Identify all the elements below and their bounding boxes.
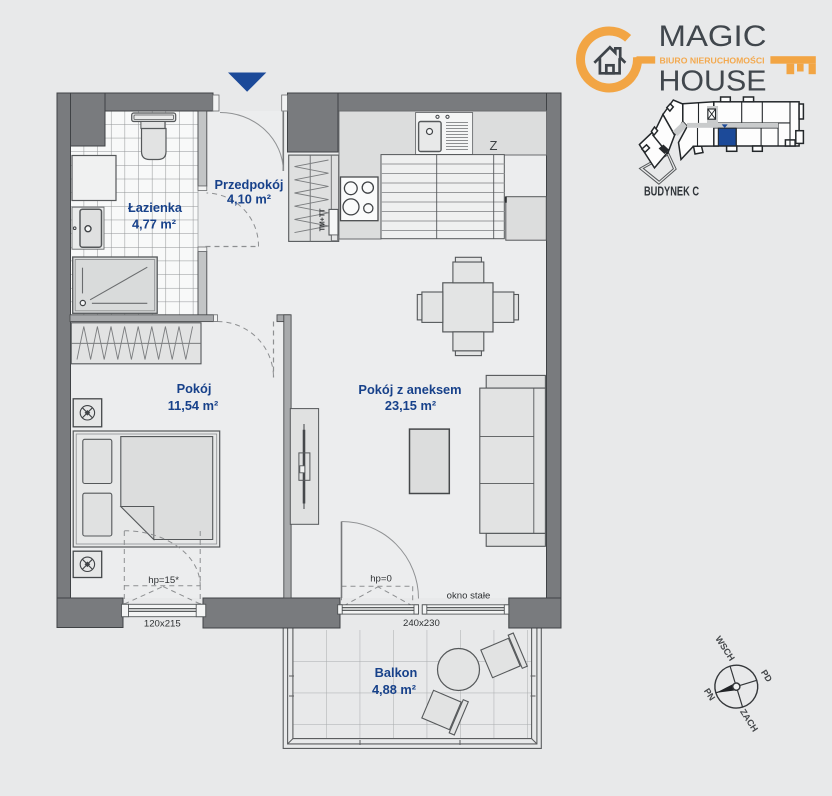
- svg-text:Z: Z: [490, 138, 498, 153]
- svg-text:Pokój z aneksem: Pokój z aneksem: [358, 382, 461, 397]
- svg-text:23,15 m²: 23,15 m²: [385, 398, 436, 413]
- svg-text:HOUSE: HOUSE: [659, 66, 767, 98]
- svg-text:Balkon: Balkon: [375, 665, 418, 680]
- svg-text:Pokój: Pokój: [177, 381, 212, 396]
- svg-text:Przedpokój: Przedpokój: [215, 177, 284, 192]
- svg-text:4,88 m²: 4,88 m²: [372, 682, 416, 697]
- svg-text:okno stałe: okno stałe: [447, 591, 491, 602]
- svg-text:120x215: 120x215: [144, 618, 181, 629]
- svg-text:240x230: 240x230: [403, 618, 440, 629]
- svg-text:4,77 m²: 4,77 m²: [132, 217, 176, 232]
- svg-text:hp=0: hp=0: [370, 574, 392, 585]
- svg-text:BUDYNEK C: BUDYNEK C: [644, 185, 699, 199]
- svg-text:4,10 m²: 4,10 m²: [227, 192, 271, 207]
- svg-text:MAGIC: MAGIC: [659, 20, 767, 53]
- svg-text:BIURO NIERUCHOMOŚCI: BIURO NIERUCHOMOŚCI: [660, 54, 765, 65]
- svg-text:hp=15*: hp=15*: [148, 575, 179, 586]
- svg-text:TM+TT: TM+TT: [320, 208, 327, 231]
- svg-text:Łazienka: Łazienka: [128, 200, 183, 215]
- svg-text:11,54 m²: 11,54 m²: [168, 398, 219, 413]
